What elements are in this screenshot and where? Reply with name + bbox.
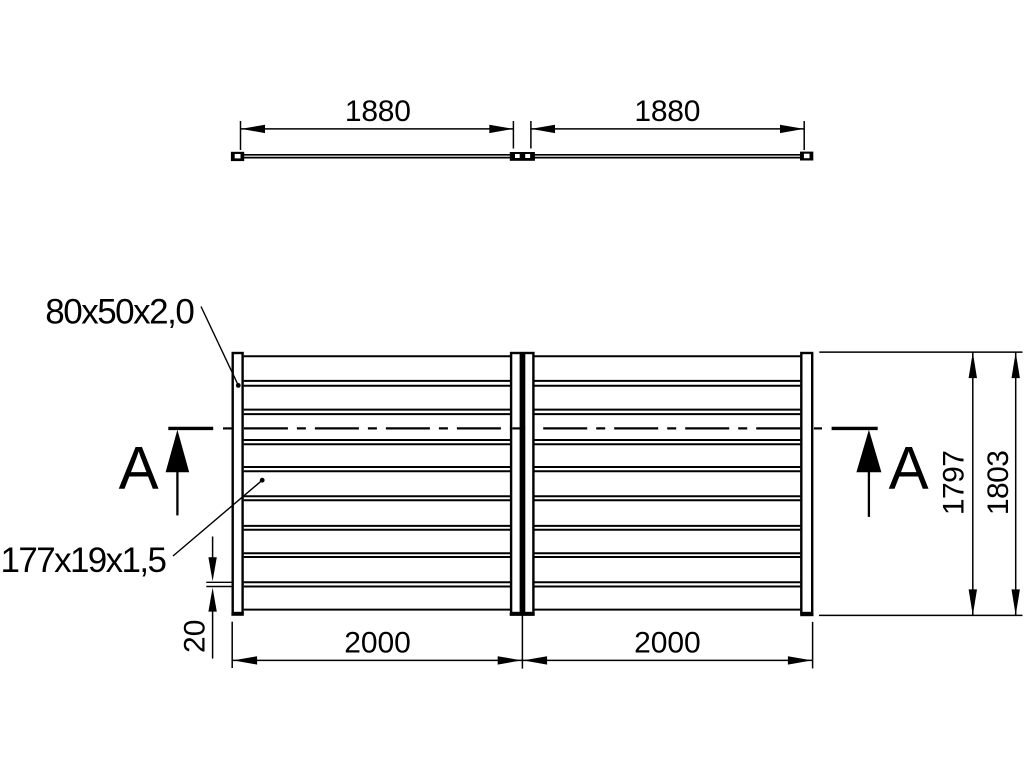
svg-text:A: A — [889, 435, 929, 502]
svg-text:1797: 1797 — [938, 450, 971, 515]
svg-text:A: A — [119, 435, 159, 502]
svg-text:20: 20 — [178, 620, 211, 653]
svg-text:2000: 2000 — [634, 627, 701, 660]
svg-text:80x50x2,0: 80x50x2,0 — [45, 292, 195, 331]
svg-text:1803: 1803 — [982, 450, 1015, 515]
svg-text:177x19x1,5: 177x19x1,5 — [1, 541, 168, 580]
svg-text:1880: 1880 — [345, 95, 411, 128]
svg-text:2000: 2000 — [344, 627, 411, 660]
svg-text:1880: 1880 — [634, 95, 700, 128]
